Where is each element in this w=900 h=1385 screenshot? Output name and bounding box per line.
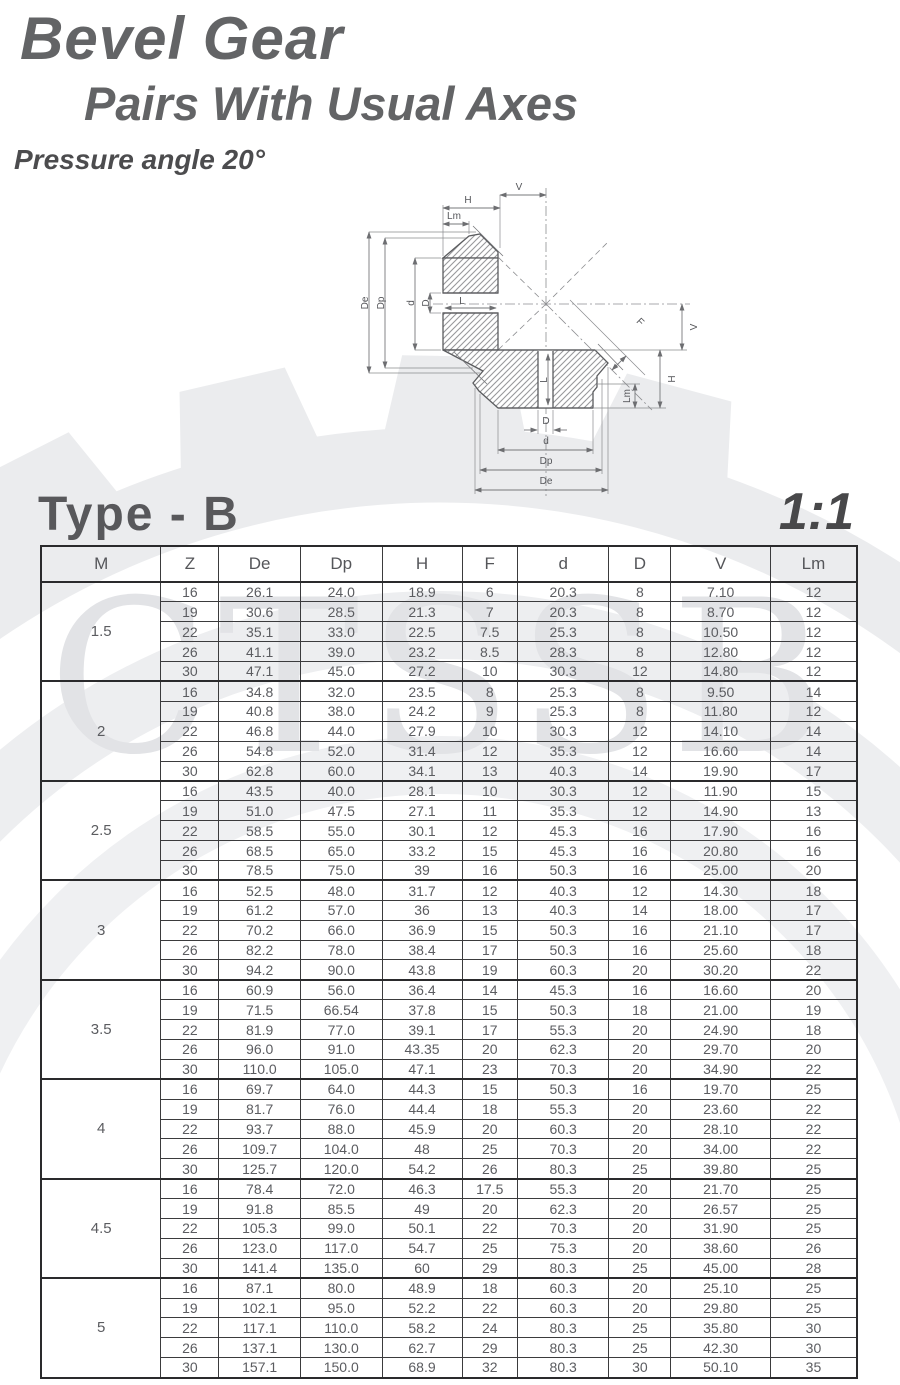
table-cell: 12: [770, 622, 857, 642]
table-cell: 20: [609, 1139, 671, 1159]
table-cell: 26.57: [671, 1199, 771, 1219]
table-cell: 16: [161, 681, 219, 701]
table-cell: 20.80: [671, 841, 771, 861]
table-cell: 109.7: [219, 1139, 301, 1159]
table-cell: 16: [161, 1079, 219, 1099]
table-cell: 10.50: [671, 622, 771, 642]
table-cell: 64.0: [300, 1079, 382, 1099]
table-cell: 16: [161, 1278, 219, 1298]
module-cell: 3: [41, 880, 161, 979]
table-row: 22105.399.050.12270.32031.9025: [41, 1219, 857, 1239]
table-cell: 9: [462, 701, 517, 721]
dim-label-dcap-bottom: D: [542, 416, 549, 427]
table-cell: 90.0: [300, 960, 382, 980]
table-cell: 20: [462, 1039, 517, 1059]
table-cell: 28.3: [517, 642, 608, 662]
table-cell: 34.1: [382, 761, 462, 781]
table-cell: 19: [161, 602, 219, 622]
table-cell: 35: [770, 1358, 857, 1378]
table-cell: 88.0: [300, 1119, 382, 1139]
table-cell: 22: [161, 721, 219, 741]
table-row: 2641.139.023.28.528.3812.8012: [41, 642, 857, 662]
table-cell: 12: [609, 662, 671, 682]
table-cell: 28.10: [671, 1119, 771, 1139]
table-cell: 16: [161, 980, 219, 1000]
dim-label-dcap-left: D: [421, 299, 432, 306]
dim-label-v-top: V: [516, 182, 523, 193]
table-cell: 46.8: [219, 721, 301, 741]
page-subtitle: Pairs With Usual Axes: [84, 76, 578, 131]
table-cell: 26: [161, 841, 219, 861]
table-cell: 9.50: [671, 681, 771, 701]
table-cell: 31.7: [382, 880, 462, 900]
table-cell: 30: [161, 1059, 219, 1079]
table-cell: 25.3: [517, 701, 608, 721]
table-cell: 22: [770, 960, 857, 980]
table-cell: 18.00: [671, 900, 771, 920]
table-cell: 102.1: [219, 1298, 301, 1318]
table-cell: 37.8: [382, 1000, 462, 1020]
table-cell: 20: [609, 960, 671, 980]
table-cell: 12: [609, 880, 671, 900]
table-cell: 22.5: [382, 622, 462, 642]
table-cell: 21.3: [382, 602, 462, 622]
table-cell: 17: [770, 920, 857, 940]
table-cell: 39: [382, 860, 462, 880]
dim-label-d-left: d: [406, 300, 417, 306]
table-cell: 22: [161, 1219, 219, 1239]
table-cell: 85.5: [300, 1199, 382, 1219]
table-cell: 96.0: [219, 1039, 301, 1059]
table-cell: 77.0: [300, 1020, 382, 1040]
table-cell: 44.0: [300, 721, 382, 741]
table-cell: 16.60: [671, 980, 771, 1000]
table-row: 1951.047.527.11135.31214.9013: [41, 801, 857, 821]
column-header: H: [382, 546, 462, 582]
table-cell: 16: [609, 841, 671, 861]
table-cell: 26: [161, 1039, 219, 1059]
table-cell: 123.0: [219, 1238, 301, 1258]
table-cell: 16: [161, 582, 219, 602]
table-row: 3.51660.956.036.41445.31616.6020: [41, 980, 857, 1000]
table-cell: 25: [609, 1318, 671, 1338]
table-cell: 117.0: [300, 1238, 382, 1258]
table-cell: 8: [609, 582, 671, 602]
table-cell: 8: [609, 622, 671, 642]
table-cell: 35.3: [517, 741, 608, 761]
table-cell: 27.2: [382, 662, 462, 682]
dim-label-f: F: [634, 316, 646, 328]
table-row: 2235.133.022.57.525.3810.5012: [41, 622, 857, 642]
table-row: 3078.575.0391650.31625.0020: [41, 860, 857, 880]
table-cell: 30: [161, 761, 219, 781]
table-cell: 35.1: [219, 622, 301, 642]
table-cell: 15: [462, 920, 517, 940]
table-row: 30125.7120.054.22680.32539.8025: [41, 1159, 857, 1179]
table-cell: 22: [770, 1099, 857, 1119]
table-cell: 20.3: [517, 602, 608, 622]
table-cell: 12: [609, 781, 671, 801]
table-cell: 33.2: [382, 841, 462, 861]
table-cell: 40.0: [300, 781, 382, 801]
table-cell: 130.0: [300, 1338, 382, 1358]
module-cell: 1.5: [41, 582, 161, 681]
table-cell: 14: [462, 980, 517, 1000]
table-cell: 80.3: [517, 1318, 608, 1338]
table-cell: 24.2: [382, 701, 462, 721]
table-cell: 95.0: [300, 1298, 382, 1318]
table-cell: 135.0: [300, 1258, 382, 1278]
table-cell: 20: [462, 1199, 517, 1219]
table-cell: 23.60: [671, 1099, 771, 1119]
table-cell: 40.3: [517, 761, 608, 781]
table-cell: 105.0: [300, 1059, 382, 1079]
table-cell: 17: [462, 1020, 517, 1040]
catalog-page: CTSSB Bevel Gear Pairs With Usual Axes P…: [0, 0, 900, 1385]
table-cell: 49: [382, 1199, 462, 1219]
table-cell: 45.3: [517, 841, 608, 861]
table-cell: 8: [609, 602, 671, 622]
table-cell: 26: [161, 1238, 219, 1258]
table-cell: 50.3: [517, 1000, 608, 1020]
table-cell: 70.3: [517, 1139, 608, 1159]
table-cell: 55.0: [300, 821, 382, 841]
table-row: 1961.257.0361340.31418.0017: [41, 900, 857, 920]
table-cell: 19.90: [671, 761, 771, 781]
table-cell: 22: [161, 622, 219, 642]
table-cell: 26.1: [219, 582, 301, 602]
table-cell: 17: [770, 900, 857, 920]
table-cell: 25: [609, 1159, 671, 1179]
table-cell: 16: [770, 821, 857, 841]
table-cell: 18: [770, 940, 857, 960]
table-cell: 14: [609, 761, 671, 781]
module-cell: 2: [41, 681, 161, 780]
table-cell: 47.5: [300, 801, 382, 821]
table-cell: 26: [161, 642, 219, 662]
table-row: 3062.860.034.11340.31419.9017: [41, 761, 857, 781]
table-cell: 40.8: [219, 701, 301, 721]
table-cell: 22: [161, 1318, 219, 1338]
table-cell: 25: [770, 1199, 857, 1219]
table-cell: 16: [609, 920, 671, 940]
table-cell: 20: [609, 1238, 671, 1258]
table-cell: 32.0: [300, 681, 382, 701]
table-cell: 8: [609, 681, 671, 701]
table-cell: 23.5: [382, 681, 462, 701]
table-cell: 11.90: [671, 781, 771, 801]
table-cell: 70.3: [517, 1219, 608, 1239]
column-header: Z: [161, 546, 219, 582]
table-cell: 16: [161, 1179, 219, 1199]
table-cell: 19: [161, 801, 219, 821]
table-cell: 26: [770, 1238, 857, 1258]
bevel-gear-drawing: V H Lm De Dp d D L L: [340, 172, 740, 502]
table-cell: 18: [462, 1278, 517, 1298]
table-cell: 29: [462, 1258, 517, 1278]
table-row: 4.51678.472.046.317.555.32021.7025: [41, 1179, 857, 1199]
table-row: 2682.278.038.41750.31625.6018: [41, 940, 857, 960]
table-cell: 27.9: [382, 721, 462, 741]
table-cell: 19: [462, 960, 517, 980]
table-cell: 10: [462, 781, 517, 801]
table-cell: 150.0: [300, 1358, 382, 1378]
type-label: Type - B: [38, 487, 240, 542]
table-cell: 30: [161, 662, 219, 682]
table-cell: 38.0: [300, 701, 382, 721]
table-cell: 20: [770, 1039, 857, 1059]
table-cell: 11.80: [671, 701, 771, 721]
table-cell: 19: [161, 1000, 219, 1020]
table-cell: 35.80: [671, 1318, 771, 1338]
table-cell: 80.3: [517, 1159, 608, 1179]
table-cell: 25: [770, 1159, 857, 1179]
dim-label-lm-top: Lm: [447, 211, 461, 222]
table-cell: 75.0: [300, 860, 382, 880]
dim-label-lm-right: Lm: [622, 389, 633, 403]
table-cell: 19.70: [671, 1079, 771, 1099]
module-cell: 4.5: [41, 1179, 161, 1278]
section-heading: Type - B 1:1: [38, 484, 858, 542]
table-cell: 19: [770, 1000, 857, 1020]
table-cell: 26: [161, 940, 219, 960]
table-cell: 20: [609, 1199, 671, 1219]
spec-table: MZDeDpHFdDVLm 1.51626.124.018.9620.387.1…: [40, 545, 858, 1379]
table-row: 30110.0105.047.12370.32034.9022: [41, 1059, 857, 1079]
table-row: 26109.7104.0482570.32034.0022: [41, 1139, 857, 1159]
table-cell: 20: [462, 1119, 517, 1139]
table-cell: 22: [161, 920, 219, 940]
table-cell: 120.0: [300, 1159, 382, 1179]
table-cell: 91.8: [219, 1199, 301, 1219]
dim-label-l-vertical-gear: L: [459, 296, 465, 307]
table-cell: 12: [770, 602, 857, 622]
table-cell: 25.60: [671, 940, 771, 960]
table-cell: 22: [462, 1219, 517, 1239]
page-content: Bevel Gear Pairs With Usual Axes Pressur…: [0, 0, 900, 1385]
table-cell: 35.3: [517, 801, 608, 821]
table-cell: 82.2: [219, 940, 301, 960]
table-cell: 16: [609, 940, 671, 960]
table-cell: 18: [462, 1099, 517, 1119]
table-cell: 105.3: [219, 1219, 301, 1239]
table-cell: 25: [462, 1238, 517, 1258]
table-cell: 76.0: [300, 1099, 382, 1119]
table-cell: 70.2: [219, 920, 301, 940]
table-cell: 50.3: [517, 940, 608, 960]
table-cell: 80.3: [517, 1258, 608, 1278]
table-cell: 80.3: [517, 1358, 608, 1378]
table-cell: 94.2: [219, 960, 301, 980]
table-cell: 47.1: [382, 1059, 462, 1079]
table-cell: 17.5: [462, 1179, 517, 1199]
table-cell: 30: [609, 1358, 671, 1378]
table-row: 2696.091.043.352062.32029.7020: [41, 1039, 857, 1059]
table-cell: 104.0: [300, 1139, 382, 1159]
table-row: 2293.788.045.92060.32028.1022: [41, 1119, 857, 1139]
column-header: d: [517, 546, 608, 582]
table-cell: 56.0: [300, 980, 382, 1000]
table-cell: 68.9: [382, 1358, 462, 1378]
table-cell: 25: [770, 1179, 857, 1199]
table-row: 19102.195.052.22260.32029.8025: [41, 1298, 857, 1318]
table-cell: 29.80: [671, 1298, 771, 1318]
table-cell: 12: [462, 821, 517, 841]
table-cell: 157.1: [219, 1358, 301, 1378]
table-cell: 43.5: [219, 781, 301, 801]
column-header: M: [41, 546, 161, 582]
table-cell: 26: [161, 1338, 219, 1358]
table-cell: 40.3: [517, 900, 608, 920]
table-cell: 78.0: [300, 940, 382, 960]
table-cell: 22: [770, 1139, 857, 1159]
table-cell: 12: [462, 880, 517, 900]
table-cell: 60: [382, 1258, 462, 1278]
table-cell: 30: [770, 1338, 857, 1358]
table-cell: 60.0: [300, 761, 382, 781]
pressure-angle-note: Pressure angle 20°: [14, 144, 265, 176]
table-cell: 54.7: [382, 1238, 462, 1258]
table-cell: 16: [609, 860, 671, 880]
table-cell: 13: [770, 801, 857, 821]
table-cell: 65.0: [300, 841, 382, 861]
table-cell: 45.00: [671, 1258, 771, 1278]
table-cell: 52.0: [300, 741, 382, 761]
column-header: De: [219, 546, 301, 582]
table-cell: 16: [462, 860, 517, 880]
table-cell: 16: [770, 841, 857, 861]
table-cell: 15: [770, 781, 857, 801]
table-cell: 18: [609, 1000, 671, 1020]
table-cell: 14.90: [671, 801, 771, 821]
table-cell: 66.0: [300, 920, 382, 940]
table-cell: 30.3: [517, 662, 608, 682]
dim-label-dp-left: Dp: [376, 296, 387, 309]
table-row: 30157.1150.068.93280.33050.1035: [41, 1358, 857, 1378]
table-row: 22117.1110.058.22480.32535.8030: [41, 1318, 857, 1338]
table-cell: 20: [609, 1179, 671, 1199]
table-cell: 7.5: [462, 622, 517, 642]
table-cell: 25: [770, 1219, 857, 1239]
table-cell: 50.3: [517, 920, 608, 940]
column-header: V: [671, 546, 771, 582]
dim-label-v-right: V: [689, 323, 700, 330]
table-cell: 8.70: [671, 602, 771, 622]
table-cell: 81.9: [219, 1020, 301, 1040]
table-cell: 19: [161, 900, 219, 920]
table-cell: 78.4: [219, 1179, 301, 1199]
table-row: 1971.566.5437.81550.31821.0019: [41, 1000, 857, 1020]
column-header: Dp: [300, 546, 382, 582]
table-cell: 23: [462, 1059, 517, 1079]
column-header: D: [609, 546, 671, 582]
table-cell: 137.1: [219, 1338, 301, 1358]
table-cell: 46.3: [382, 1179, 462, 1199]
table-cell: 14.80: [671, 662, 771, 682]
module-cell: 2.5: [41, 781, 161, 880]
table-cell: 45.3: [517, 980, 608, 1000]
table-row: 1981.776.044.41855.32023.6022: [41, 1099, 857, 1119]
table-cell: 22: [770, 1059, 857, 1079]
dim-label-l-horizontal-gear: L: [539, 377, 550, 383]
table-cell: 20: [609, 1059, 671, 1079]
table-cell: 20: [609, 1099, 671, 1119]
table-cell: 50.10: [671, 1358, 771, 1378]
table-cell: 30.20: [671, 960, 771, 980]
table-cell: 30: [161, 960, 219, 980]
dim-label-h-top: H: [464, 195, 471, 206]
table-cell: 20: [609, 1039, 671, 1059]
table-cell: 43.8: [382, 960, 462, 980]
table-row: 2668.565.033.21545.31620.8016: [41, 841, 857, 861]
table-cell: 40.3: [517, 880, 608, 900]
table-cell: 28.1: [382, 781, 462, 801]
table-cell: 24: [462, 1318, 517, 1338]
table-cell: 16.60: [671, 741, 771, 761]
table-cell: 54.8: [219, 741, 301, 761]
table-cell: 12: [770, 701, 857, 721]
table-cell: 72.0: [300, 1179, 382, 1199]
table-cell: 6: [462, 582, 517, 602]
table-row: 26123.0117.054.72575.32038.6026: [41, 1238, 857, 1258]
table-cell: 36.4: [382, 980, 462, 1000]
dim-label-de-left: De: [360, 296, 371, 309]
table-cell: 60.3: [517, 1119, 608, 1139]
table-cell: 32: [462, 1358, 517, 1378]
table-cell: 55.3: [517, 1099, 608, 1119]
table-cell: 28: [770, 1258, 857, 1278]
table-cell: 8: [462, 681, 517, 701]
table-cell: 25: [609, 1338, 671, 1358]
column-header: Lm: [770, 546, 857, 582]
table-cell: 12.80: [671, 642, 771, 662]
table-row: 2.51643.540.028.11030.31211.9015: [41, 781, 857, 801]
table-cell: 27.1: [382, 801, 462, 821]
table-cell: 58.5: [219, 821, 301, 841]
table-cell: 8.5: [462, 642, 517, 662]
table-cell: 80.0: [300, 1278, 382, 1298]
table-cell: 50.1: [382, 1219, 462, 1239]
table-cell: 21.10: [671, 920, 771, 940]
table-cell: 16: [609, 1079, 671, 1099]
table-cell: 44.3: [382, 1079, 462, 1099]
table-cell: 50.3: [517, 860, 608, 880]
table-cell: 19: [161, 1298, 219, 1318]
table-cell: 19: [161, 1199, 219, 1219]
page-title: Bevel Gear: [20, 4, 344, 73]
table-cell: 16: [609, 980, 671, 1000]
ratio-label: 1:1: [779, 482, 858, 542]
table-cell: 22: [161, 1119, 219, 1139]
table-cell: 12: [770, 582, 857, 602]
table-cell: 8: [609, 642, 671, 662]
table-cell: 18.9: [382, 582, 462, 602]
table-cell: 34.8: [219, 681, 301, 701]
table-cell: 43.35: [382, 1039, 462, 1059]
table-cell: 23.2: [382, 642, 462, 662]
table-cell: 69.7: [219, 1079, 301, 1099]
table-cell: 25: [770, 1278, 857, 1298]
table-cell: 19: [161, 701, 219, 721]
table-cell: 12: [609, 721, 671, 741]
table-row: 31652.548.031.71240.31214.3018: [41, 880, 857, 900]
table-cell: 30.3: [517, 781, 608, 801]
table-cell: 10: [462, 721, 517, 741]
table-cell: 30: [161, 1159, 219, 1179]
table-cell: 25: [609, 1258, 671, 1278]
table-row: 21634.832.023.5825.389.5014: [41, 681, 857, 701]
table-row: 30141.4135.0602980.32545.0028: [41, 1258, 857, 1278]
